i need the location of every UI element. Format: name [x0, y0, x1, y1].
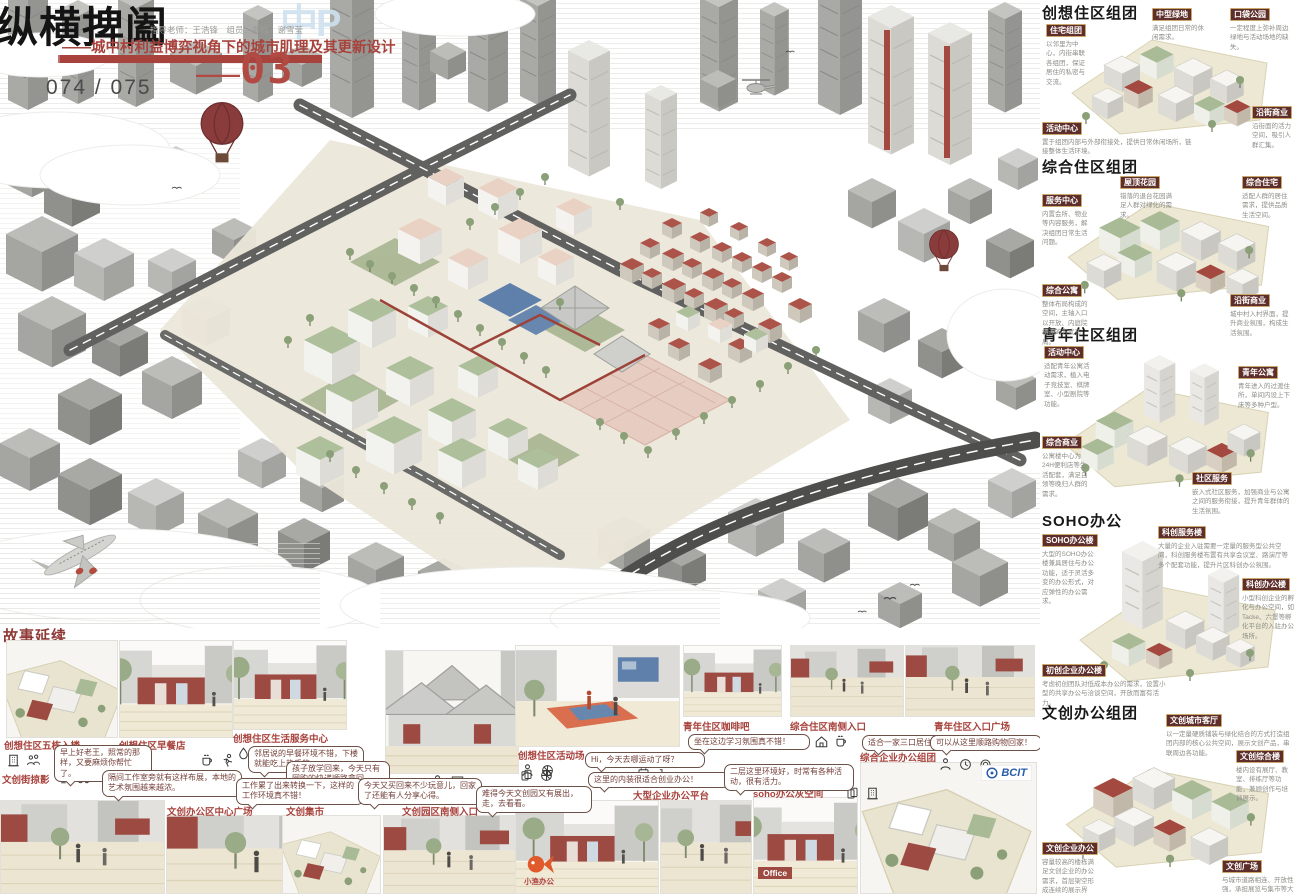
- page-number: 074 / 075: [46, 76, 152, 100]
- panel-caption: 青年住区入口广场: [934, 719, 1010, 733]
- section-youth-residential: 青年住区组团 活动中心适配青年公寓活动需求，植入电子竞技室、棋牌室、小型剧院等功…: [1040, 320, 1298, 508]
- bcit-mark-icon: [986, 767, 998, 779]
- panel-caption: 文创办公区中心广场: [167, 804, 253, 818]
- section-title: SOHO办公: [1042, 510, 1122, 531]
- diagram-label-desc: 嵌入式社区服务，加强商业与公寓之间的服务衔接，提升青年群体的生活氛围。: [1192, 488, 1292, 516]
- building-icon: [865, 786, 880, 801]
- speech-bubble: 二层这里环境好，时常有各种活动，很有活力。: [724, 764, 854, 791]
- story-panel: [119, 640, 233, 738]
- story-panel: [790, 645, 904, 717]
- diagram-label: 屋顶花园: [1120, 176, 1160, 189]
- diagram-label: 服务中心: [1042, 194, 1082, 207]
- diagram-label-desc: 考虑初创团队对低成本办公的需求，设置小型的共享办公与洽谈空间，开放而富有活力。: [1042, 680, 1170, 708]
- story-panel: [6, 640, 118, 738]
- goldfish-icon: [524, 853, 554, 876]
- office-sign: Office: [758, 867, 792, 879]
- panel-caption: 文创集市: [286, 804, 324, 818]
- diagram-label: 科创办公楼: [1242, 578, 1290, 591]
- diagram-label-desc: 错落的退台花园满足人群对绿化的需求。: [1120, 192, 1174, 220]
- bcit-logo: BCIT: [981, 765, 1032, 781]
- panel-caption: 综合住区南侧入口: [790, 719, 866, 733]
- diagram-label-desc: 以邻里为中心，内街串联各组团，保证居住的私密与交流。: [1046, 40, 1090, 87]
- diagram-label-desc: 城中村入村界面，提升商业氛围，构成生活氛围。: [1230, 310, 1292, 338]
- detail-diagrams-sidebar: 创想住区组团 住宅组团以邻里为中心，内街串联各组团，保证居住的私密与交流。 中型…: [1040, 0, 1300, 894]
- coffee-cup-icon: [200, 753, 215, 768]
- people-icon: [26, 753, 41, 768]
- diagram-label-desc: 一定程度上弥补周边绿地与活动场地的缺失。: [1230, 24, 1292, 52]
- masterplan-axonometric-illustration: [0, 0, 1040, 630]
- section-cultural-office: 文创办公组团 文创城市客厅以一定量硬质铺装与绿化结合的方式打造组团内部的核心公共…: [1040, 700, 1298, 892]
- story-panel: [0, 800, 165, 894]
- diagram-label-desc: 楼内设有展厅、教室、排练厅等功能，兼顾创作与培训展示。: [1236, 766, 1292, 804]
- diagram-label-desc: 适配人群的居住需求，提供品质生活空间。: [1242, 192, 1292, 220]
- speech-bubble: Hi，今天去哪运动了呀？: [585, 752, 705, 768]
- person-icon: [938, 757, 953, 772]
- diagram-label-desc: 大量的企业入驻需要一定量的服务型公共空间，科创服务楼布置有共享会议室、路演厅等多…: [1158, 542, 1292, 570]
- diagram-label: 沿街商业: [1252, 106, 1292, 119]
- diagram-label-desc: 容量较高的楼栋满足文创企业的办公需求，首层架空形成连续的展示界面。: [1042, 858, 1096, 894]
- diagram-label-desc: 公寓楼中心为24H便利店等生活配套，满足白领等晚归人群的需求。: [1042, 452, 1092, 499]
- speech-bubble: 难得今天文创园又有展出，走，去看看。: [476, 786, 592, 813]
- diagram-label-desc: 满足组团日常的休闲需求。: [1152, 24, 1204, 43]
- panel-caption: 文创街掠影: [2, 772, 50, 786]
- section-chuangxiang-residential: 创想住区组团 住宅组团以邻里为中心，内街串联各组团，保证居住的私密与交流。 中型…: [1040, 2, 1298, 152]
- diagram-label-desc: 内置会所、物业等内容服务，解决组团日常生活问题。: [1042, 210, 1088, 248]
- diagram-label: 文创城市客厅: [1166, 714, 1222, 727]
- diagram-label: SOHO办公楼: [1042, 534, 1098, 547]
- basketball-icon: [539, 768, 554, 783]
- diagram-label: 住宅组团: [1046, 24, 1086, 37]
- diagram-label: 中型绿地: [1152, 8, 1192, 21]
- runner-icon: [220, 753, 235, 768]
- speech-bubble: 工作累了出来转换一下，这样的工作环境真不错！: [236, 778, 364, 805]
- story-panel: 小渔办公: [515, 800, 659, 894]
- diagram-label: 沿街商业: [1230, 294, 1270, 307]
- diagram-label: 活动中心: [1044, 346, 1084, 359]
- speech-bubble: 隔间工作室旁就有这样布展，本地的艺术氛围越来越浓。: [102, 770, 242, 797]
- diagram-label: 综合商业: [1042, 436, 1082, 449]
- coffee-cup-icon: [834, 734, 849, 749]
- panel-caption: 综合企业办公组团: [860, 750, 936, 764]
- story-panel: [282, 815, 381, 894]
- diagram-label-desc: 适配青年公寓活动需求，植入电子竞技室、棋牌室、小型剧院等功能。: [1044, 362, 1094, 409]
- diagram-label-desc: 整体布局构成的空间，主轴入口以开放、内庭院相连的方式布局。: [1042, 300, 1090, 347]
- speech-bubble: 坐在这边学习氛围真不错！: [688, 734, 810, 750]
- diagram-label: 文创综合楼: [1236, 750, 1284, 763]
- building-icon: [6, 753, 21, 768]
- story-panel: Office: [753, 797, 858, 894]
- story-strip: 故事延续 创想住区五栋入楼 早上好老王，照常的那样，又要麻烦你帮忙了。 创想住区…: [0, 628, 1040, 894]
- diagram-label: 口袋公园: [1230, 8, 1270, 21]
- diagram-label-desc: 沿街面的活力空间，吸引人群汇集。: [1252, 122, 1296, 150]
- diagram-label: 社区服务: [1192, 472, 1232, 485]
- section-soho-office: SOHO办公 SOHO办公楼大型的SOHO办公楼兼具居住与办公功能，适于灵活多变…: [1040, 508, 1298, 700]
- cards-icon: [519, 768, 534, 783]
- panel-caption: 文创园区南侧入口: [402, 804, 478, 818]
- story-panel: [660, 800, 752, 894]
- story-panel: [385, 650, 519, 774]
- speech-bubble: 这里的内装很适合创业办公！: [588, 772, 730, 788]
- diagram-label-desc: 与城市道路相连、开放性强，承担展览与集市等大型活动，是组团的门户空间。: [1222, 876, 1294, 894]
- diagram-label: 文创广场: [1222, 860, 1262, 873]
- panel-caption: 创想住区活动场: [518, 748, 585, 762]
- competition-board: 中P 纵横捭阖 指导老师：王浩锋 组员：郑峰 谢雪莹 ——城中村利益博弈视角下的…: [0, 0, 1300, 894]
- speech-bubble: 可以从这里顺路购物回家！: [930, 735, 1042, 751]
- clock-icon: [958, 757, 973, 772]
- panel-caption: 创想住区生活服务中心: [233, 731, 328, 745]
- panel-caption: 青年住区咖啡吧: [683, 719, 750, 733]
- story-panel: [683, 645, 782, 717]
- diagram-label: 科创服务楼: [1158, 526, 1206, 539]
- speech-bubble: 今天又买回来不少玩意儿，回家了还能有人分享心得。: [358, 778, 482, 805]
- diagram-label-desc: 小型科创企业的孵化与办公空间，如 Tacke、六堡等孵化平台的入驻办公场所。: [1242, 594, 1294, 641]
- story-panel: BCIT: [860, 762, 1037, 894]
- diagram-label-desc: 青年进入的过渡住所，单间内设上下床等多种户型。: [1238, 382, 1292, 410]
- home-icon: [814, 734, 829, 749]
- diagram-label-desc: 置于组团内部与外部衔接处，提供日常休闲场所，链接整体生活环境。: [1042, 138, 1192, 157]
- diagram-label: 初创企业办公楼: [1042, 664, 1106, 677]
- section-comprehensive-residential: 综合住区组团 服务中心内置会所、物业等内容服务，解决组团日常生活问题。 屋顶花园…: [1040, 152, 1298, 320]
- story-panel: [905, 645, 1035, 717]
- diagram-label: 活动中心: [1042, 122, 1082, 135]
- diagram-label: 综合公寓: [1042, 284, 1082, 297]
- diagram-label: 综合住宅: [1242, 176, 1282, 189]
- story-panel: [515, 645, 680, 747]
- story-panel: [233, 640, 347, 730]
- diagram-label-desc: 大型的SOHO办公楼兼具居住与办公功能，适于灵活多变的办公形式，对应弹性的办公需…: [1042, 550, 1096, 607]
- panel-caption: 大型企业办公平台: [633, 788, 709, 802]
- xiaoyu-office-logo: 小渔办公: [524, 853, 554, 888]
- diagram-label: 文创企业办公: [1042, 842, 1098, 855]
- story-panel: [383, 815, 522, 894]
- diagram-label: 青年公寓: [1238, 366, 1278, 379]
